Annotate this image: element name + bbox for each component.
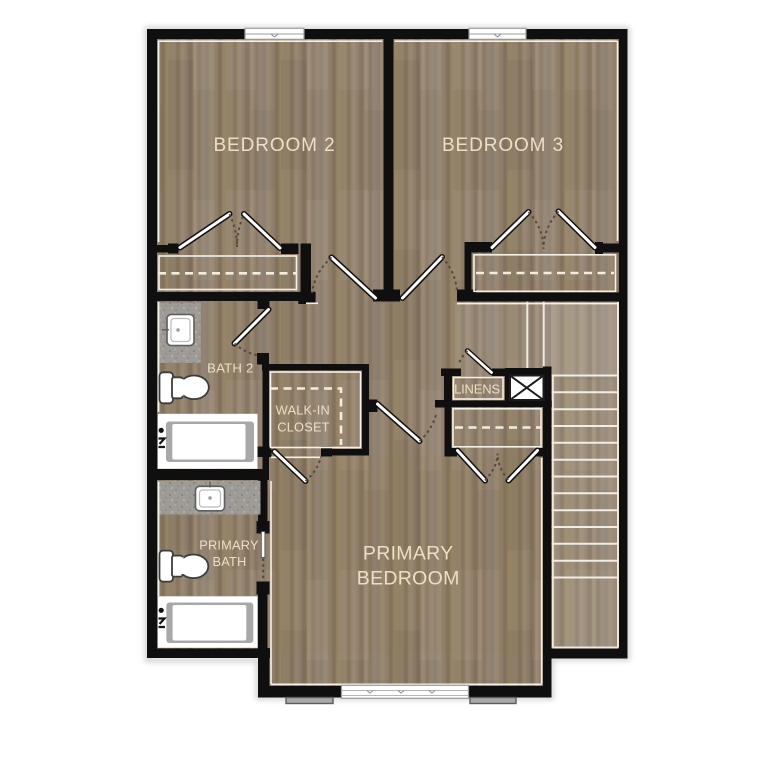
- svg-text:BEDROOM 3: BEDROOM 3: [442, 135, 564, 156]
- svg-text:PRIMARY: PRIMARY: [199, 538, 259, 553]
- svg-text:LINENS: LINENS: [454, 382, 500, 397]
- svg-text:BATH 2: BATH 2: [207, 361, 253, 376]
- svg-text:BEDROOM: BEDROOM: [357, 568, 460, 590]
- svg-text:WALK-IN: WALK-IN: [276, 403, 330, 418]
- svg-text:PRIMARY: PRIMARY: [363, 543, 454, 565]
- svg-text:BEDROOM 2: BEDROOM 2: [213, 135, 335, 156]
- svg-text:BATH: BATH: [213, 554, 247, 569]
- svg-text:CLOSET: CLOSET: [277, 419, 329, 434]
